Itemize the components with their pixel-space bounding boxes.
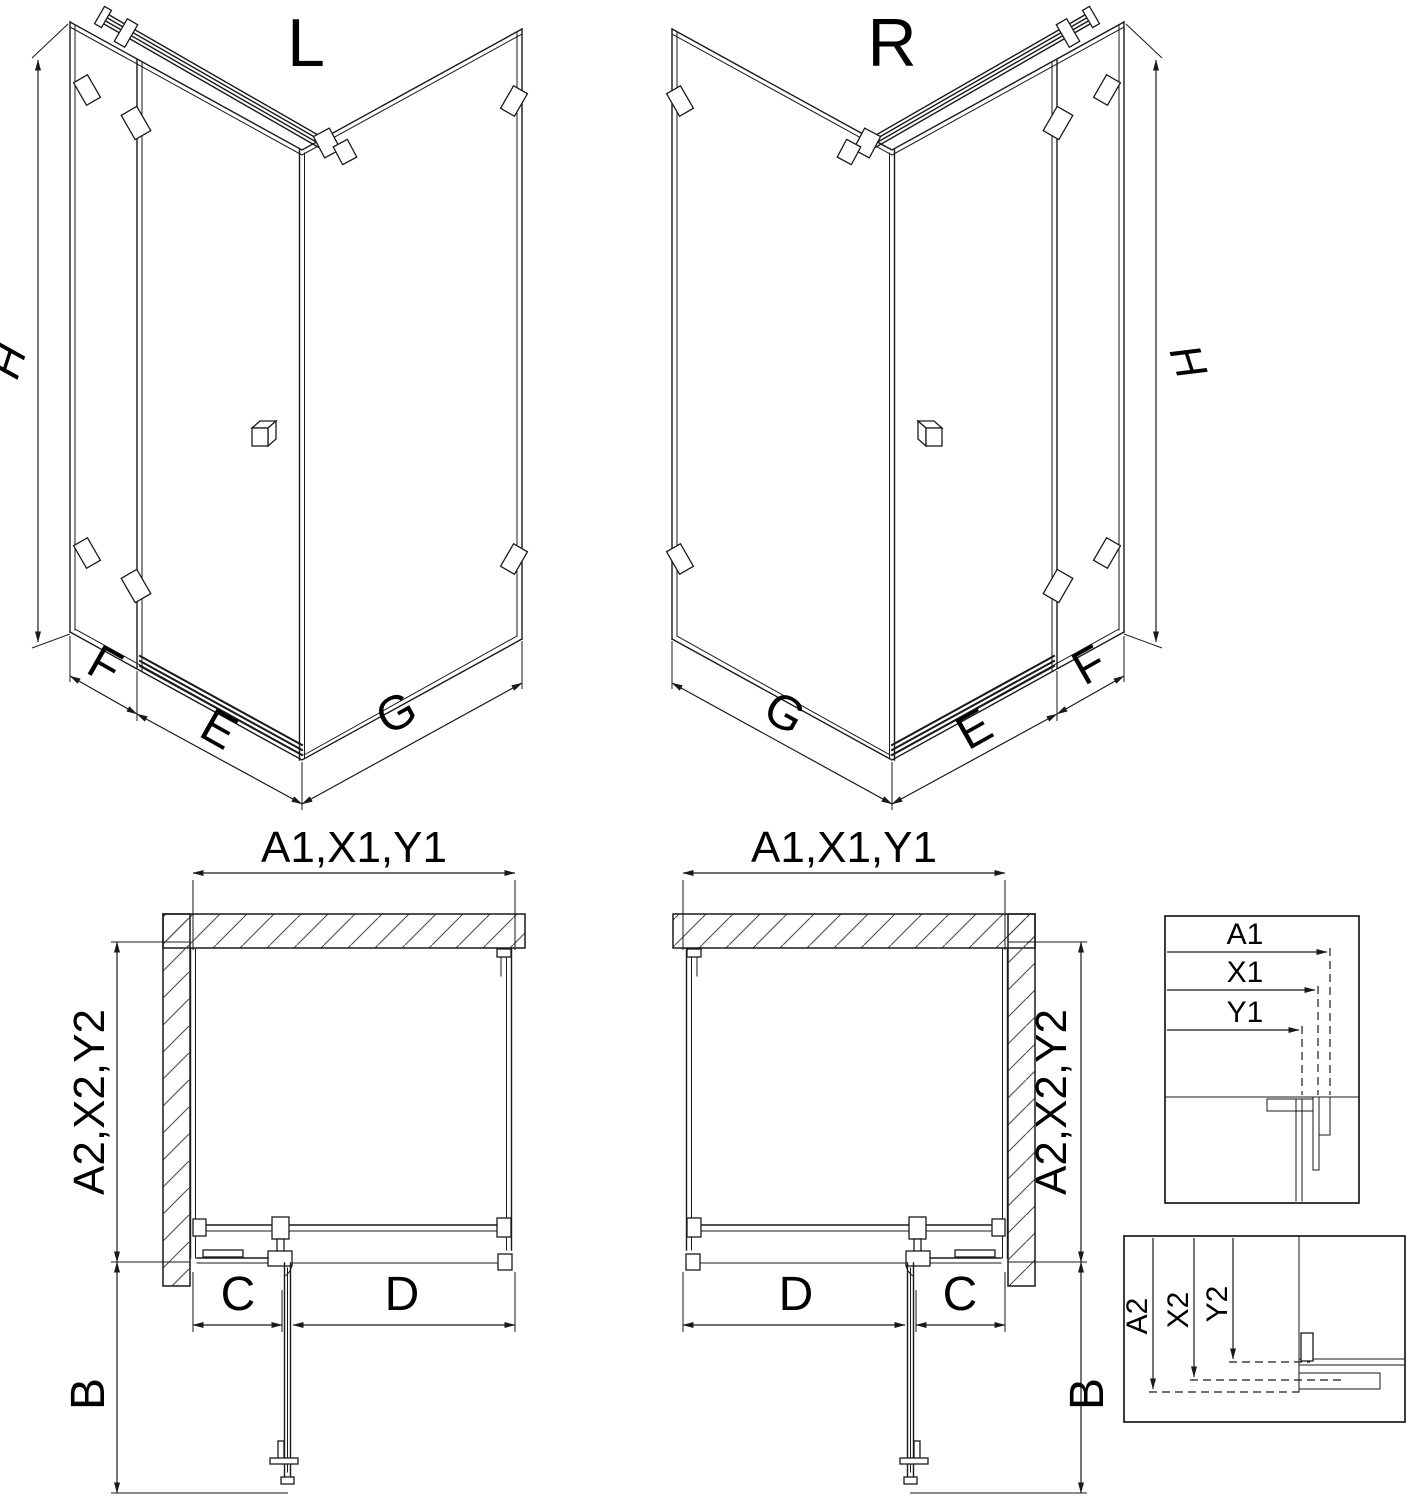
plan-right-walls xyxy=(673,914,1035,1286)
door-handle-icon xyxy=(918,421,942,446)
iso-view-left: H F E G L xyxy=(0,5,527,810)
plan-left-walls xyxy=(163,914,525,1286)
height-dim-label: H xyxy=(1160,339,1216,385)
plan-right-open-door xyxy=(900,1263,928,1484)
detail-width-profile xyxy=(1267,1097,1330,1201)
detail-box-depth: A2 X2 Y2 xyxy=(1121,1236,1405,1422)
overall-width-dim-label: A1,X1,Y1 xyxy=(261,823,447,872)
front-width-dim-label: E xyxy=(192,699,246,761)
return-width-dim-label: G xyxy=(755,681,813,745)
side-depth-dim-label: F xyxy=(79,635,131,696)
overall-depth-dim-label: A2,X2,Y2 xyxy=(65,1009,114,1195)
return-width-dim-label: G xyxy=(367,681,425,745)
plan-left-open-door xyxy=(270,1263,298,1484)
detail-x1-label: X1 xyxy=(1227,956,1264,989)
detail-a2-label: A2 xyxy=(1121,1298,1154,1335)
door-width-dim-label: D xyxy=(385,1268,420,1321)
shower-enclosure-technical-drawing: H F E G L xyxy=(0,0,1416,1499)
plan-view-left: A1,X1,Y1 A2,X2,Y2 B C D xyxy=(62,823,525,1493)
plan-left-glass xyxy=(191,949,512,1258)
iso-right-base-dimensions: G E F xyxy=(672,635,1124,810)
height-dim-label: H xyxy=(0,339,36,385)
overall-depth-dim-label: A2,X2,Y2 xyxy=(1027,1009,1076,1195)
iso-left-base-dimensions: F E G xyxy=(70,635,522,810)
front-width-dim-label: E xyxy=(947,699,1001,761)
fixed-panel-dim-label: C xyxy=(943,1268,978,1321)
iso-right-height-dimension: H xyxy=(1124,24,1216,648)
door-handle-icon xyxy=(252,421,276,446)
overall-width-dim-label: A1,X1,Y1 xyxy=(751,823,937,872)
iso-view-right: H G E F R xyxy=(667,5,1216,810)
detail-a1-label: A1 xyxy=(1227,918,1264,951)
door-swing-dim-label: B xyxy=(1061,1378,1114,1410)
detail-x2-label: X2 xyxy=(1162,1292,1195,1329)
side-depth-dim-label: F xyxy=(1064,635,1116,696)
door-swing-dim-label: B xyxy=(62,1378,115,1410)
fixed-panel-dim-label: C xyxy=(221,1268,256,1321)
iso-left-height-dimension: H xyxy=(0,24,70,648)
plan-view-right: A1,X1,Y1 A2,X2,Y2 B C D xyxy=(673,823,1114,1493)
door-width-dim-label: D xyxy=(779,1268,814,1321)
drawing-svg: H F E G L xyxy=(0,0,1416,1499)
detail-y2-label: Y2 xyxy=(1201,1286,1234,1323)
plan-right-glass xyxy=(687,949,1008,1258)
variant-label-right: R xyxy=(867,5,916,81)
variant-label-left: L xyxy=(287,5,325,81)
detail-box-width: A1 X1 Y1 xyxy=(1165,916,1359,1203)
detail-y1-label: Y1 xyxy=(1227,996,1264,1029)
